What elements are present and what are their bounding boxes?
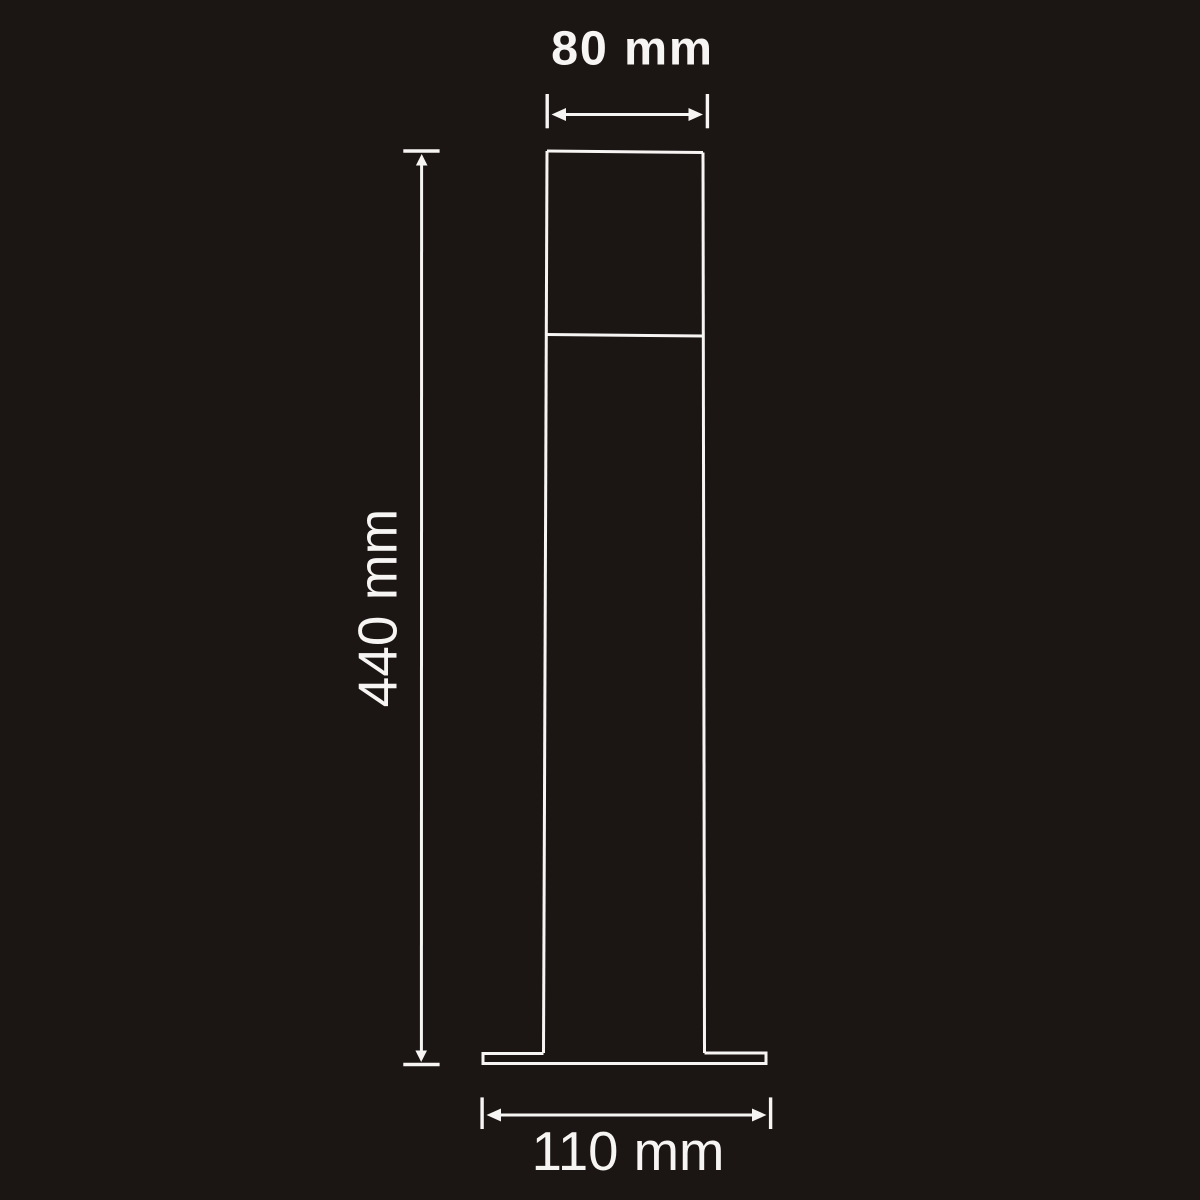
svg-text:110 mm: 110 mm (532, 1121, 725, 1182)
svg-text:80 mm: 80 mm (551, 22, 714, 76)
svg-text:440 mm: 440 mm (347, 509, 409, 708)
